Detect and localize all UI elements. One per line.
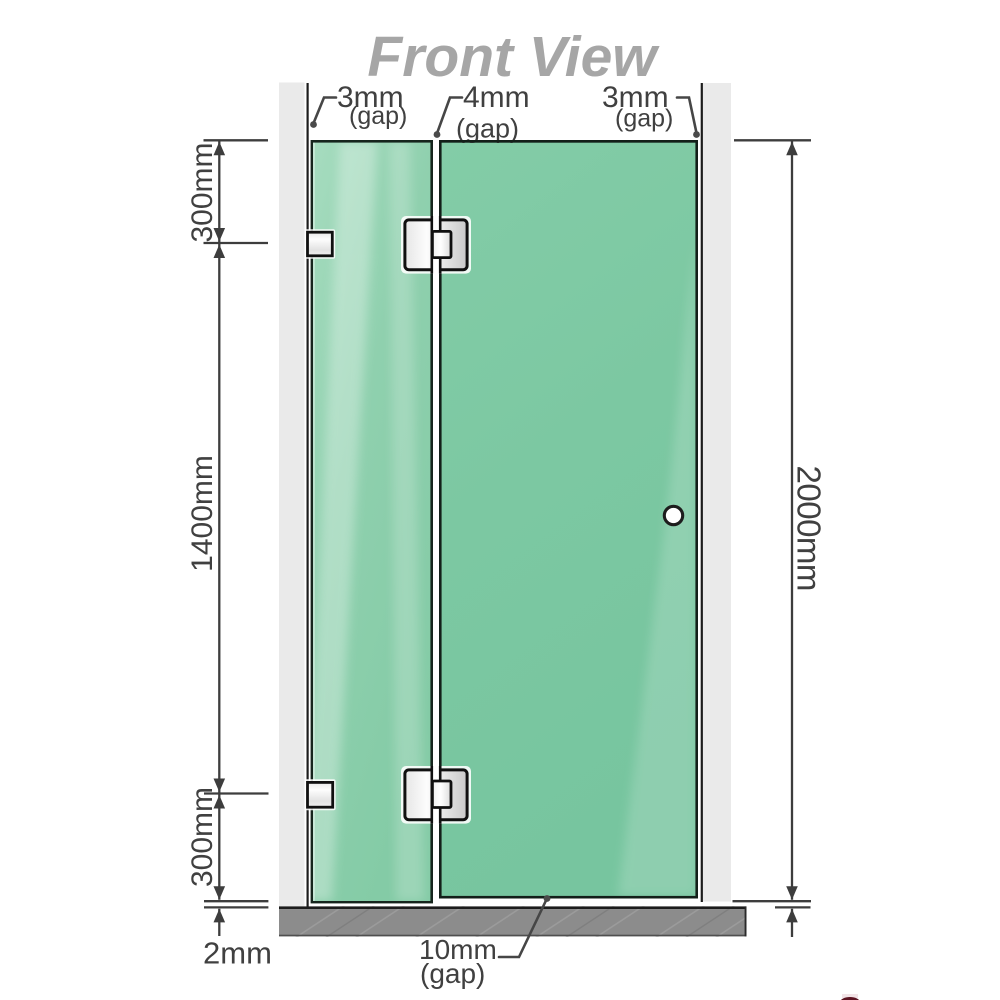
svg-text:300mm: 300mm — [186, 142, 219, 242]
svg-text:(gap): (gap) — [615, 105, 673, 133]
svg-text:4mm: 4mm — [463, 81, 530, 114]
svg-text:Front View: Front View — [367, 25, 660, 89]
svg-text:2000mm: 2000mm — [790, 466, 827, 591]
svg-text:(gap): (gap) — [349, 102, 407, 130]
svg-text:(gap): (gap) — [420, 958, 485, 989]
svg-text:(gap): (gap) — [456, 114, 519, 144]
svg-text:1400mm: 1400mm — [186, 455, 219, 572]
svg-text:2mm: 2mm — [203, 936, 272, 971]
svg-text:300mm: 300mm — [186, 787, 219, 887]
